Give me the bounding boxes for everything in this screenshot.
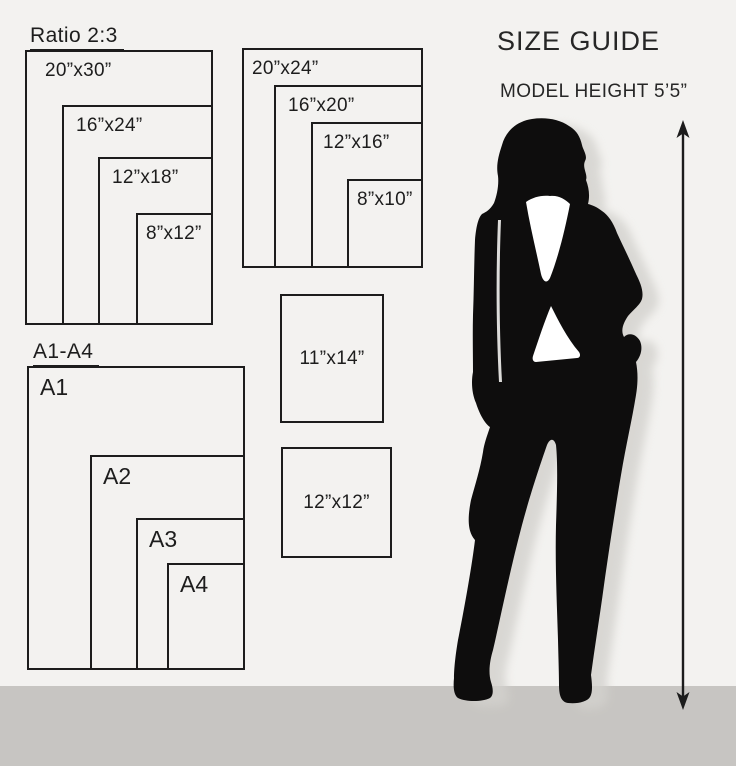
size-box-a4: A4 [167,563,245,670]
size-label-12x16: 12”x16” [323,132,390,154]
size-label-16x24: 16”x24” [76,115,143,137]
ratio-group-label: Ratio 2:3 [30,24,124,51]
size-box-11x14: 11”x14” [280,294,384,423]
size-label-a3: A3 [149,526,177,553]
size-box-12x12: 12”x12” [281,447,392,558]
size-label-a2: A2 [103,463,131,490]
size-box-8x12: 8”x12” [136,213,213,325]
size-label-8x12: 8”x12” [146,223,202,245]
size-label-12x12: 12”x12” [303,492,370,514]
size-label-20x30: 20”x30” [45,60,112,82]
size-label-16x20: 16”x20” [288,95,355,117]
size-label-a4: A4 [180,571,208,598]
woman-model-silhouette-icon [430,100,670,720]
height-measure-arrow-icon [671,118,695,712]
size-label-8x10: 8”x10” [357,189,413,211]
a-series-group-label: A1-A4 [33,340,99,367]
size-box-8x10: 8”x10” [347,179,423,268]
size-guide-diagram: SIZE GUIDE MODEL HEIGHT 5’5” Ratio 2:3 2… [0,0,736,766]
size-label-11x14: 11”x14” [299,348,364,370]
size-label-20x24: 20”x24” [252,58,319,80]
page-title: SIZE GUIDE [497,26,660,57]
size-label-a1: A1 [40,374,68,401]
size-label-12x18: 12”x18” [112,167,179,189]
